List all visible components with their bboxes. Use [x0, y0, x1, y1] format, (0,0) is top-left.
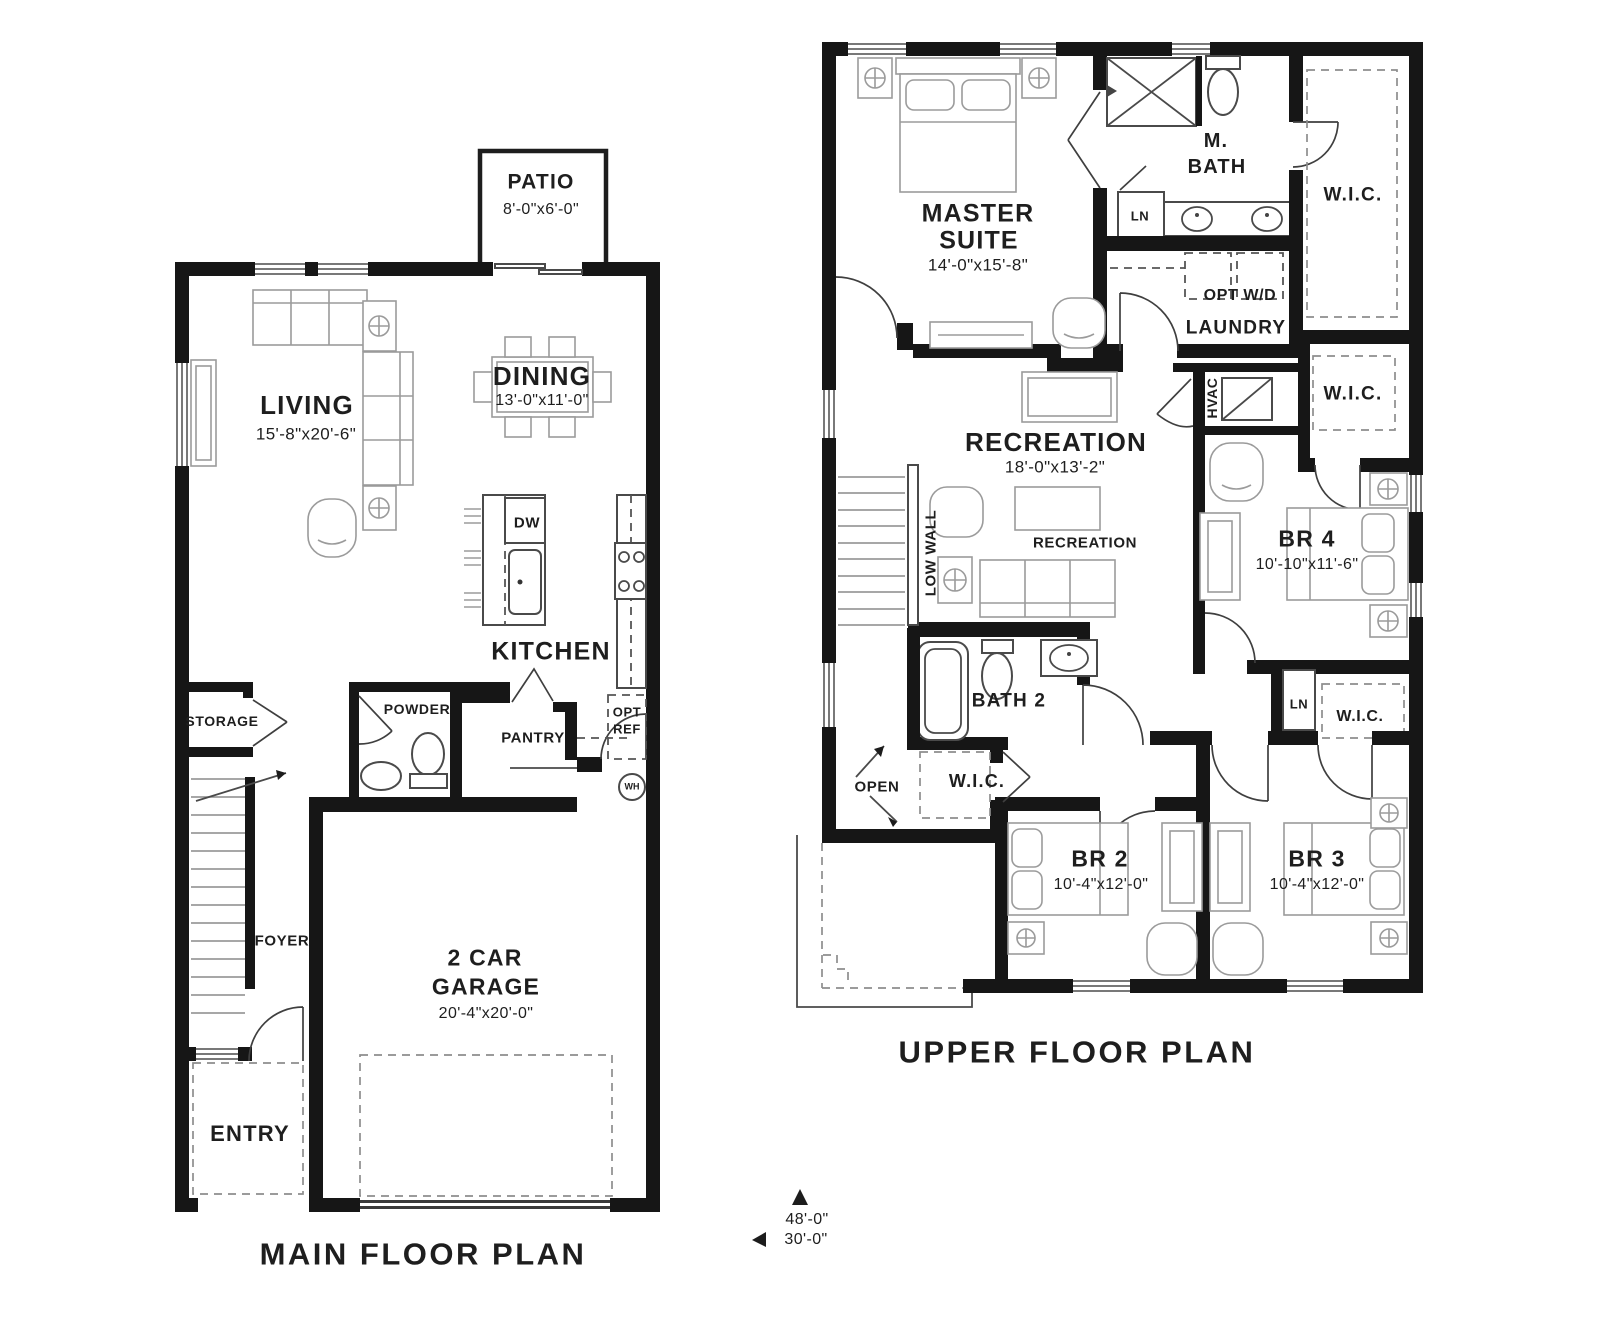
bath2-label: BATH 2 — [972, 692, 1046, 711]
width-dimension: 30'-0" — [784, 1232, 827, 1248]
opt-ref-label-line1: OPT — [613, 706, 642, 719]
recreation-furniture — [930, 372, 1117, 617]
br4-dims: 10'-10"x11'-6" — [1256, 557, 1359, 573]
wic-master-label: W.I.C. — [1324, 186, 1383, 205]
recreation-sublabel: RECREATION — [1033, 536, 1137, 551]
opt-wd-label: OPT W/D — [1204, 288, 1277, 304]
entry-label: ENTRY — [210, 1123, 290, 1145]
wic-3-label: W.I.C. — [949, 772, 1005, 790]
dining-dims: 13'-0"x11'-0" — [495, 393, 589, 409]
stairs-upper — [838, 465, 920, 827]
master-suite-label-line1: MASTER — [922, 202, 1035, 227]
powder-label: POWDER — [384, 702, 451, 716]
patio-dims: 8'-0"x6'-0" — [503, 202, 579, 218]
wic-4-label: W.I.C. — [1336, 709, 1383, 725]
br2-dims: 10'-4"x12'-0" — [1054, 877, 1149, 893]
living-label: LIVING — [260, 392, 354, 418]
upper-plan-title: UPPER FLOOR PLAN — [899, 1037, 1256, 1068]
pantry-label: PANTRY — [501, 731, 565, 746]
wic-2-label: W.I.C. — [1324, 385, 1383, 404]
master-suite-dims: 14'-0"x15'-8" — [928, 257, 1028, 274]
linen2-label: LN — [1290, 698, 1309, 711]
main-floor-plan-drawing — [175, 151, 660, 1212]
master-bath-label-line2: BATH — [1188, 157, 1247, 177]
laundry-label: LAUNDRY — [1186, 319, 1287, 338]
dining-label: DINING — [493, 363, 591, 389]
kitchen-counter — [615, 495, 646, 688]
dishwasher-label: DW — [514, 516, 540, 531]
opt-ref-label-line2: REF — [613, 723, 641, 736]
main-plan-title: MAIN FLOOR PLAN — [260, 1239, 587, 1270]
depth-dimension: 48'-0" — [785, 1212, 828, 1228]
br2-label: BR 2 — [1071, 848, 1128, 871]
garage-label-line1: 2 CAR — [447, 947, 522, 970]
open-label: OPEN — [855, 780, 900, 795]
br3-label: BR 3 — [1288, 848, 1345, 871]
stairs-main — [191, 770, 286, 1013]
master-suite-label-line2: SUITE — [939, 229, 1019, 254]
foyer-label: FOYER — [255, 934, 310, 949]
garage-label-line2: GARAGE — [432, 976, 540, 999]
floorplan-canvas: PATIO 8'-0"x6'-0" LIVING 15'-8"x20'-6" D… — [0, 0, 1600, 1318]
master-bath-label-line1: M. — [1204, 131, 1229, 151]
living-dims: 15'-8"x20'-6" — [256, 426, 356, 443]
water-heater-label: WH — [625, 783, 640, 792]
storage-label: STORAGE — [185, 714, 258, 728]
hvac-label: HVAC — [1205, 377, 1219, 418]
recreation-label: RECREATION — [965, 429, 1147, 455]
low-wall-label: LOW WALL — [924, 510, 939, 596]
kitchen-label: KITCHEN — [491, 640, 611, 665]
br3-dims: 10'-4"x12'-0" — [1270, 877, 1365, 893]
living-furniture — [191, 290, 413, 557]
recreation-dims: 18'-0"x13'-2" — [1005, 459, 1105, 476]
garage-dims: 20'-4"x20'-0" — [439, 1006, 534, 1022]
br4-label: BR 4 — [1278, 528, 1335, 551]
patio-label: PATIO — [507, 172, 574, 193]
linen1-label: LN — [1131, 210, 1150, 223]
